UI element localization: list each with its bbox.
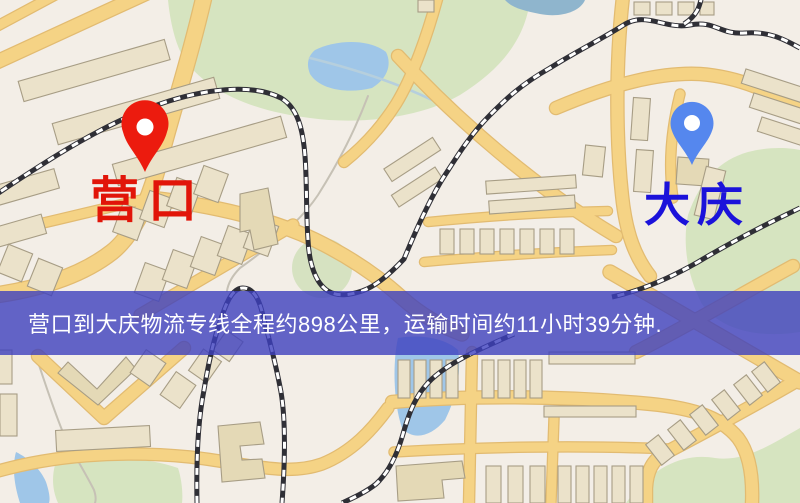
destination-pin-body[interactable] xyxy=(671,102,714,165)
map-background xyxy=(0,0,800,503)
destination-pin[interactable] xyxy=(671,102,714,165)
route-info-text: 营口到大庆物流专线全程约898公里，运输时间约11小时39分钟. xyxy=(28,307,662,339)
origin-pin-hole xyxy=(137,119,154,136)
lake-top-left xyxy=(308,42,389,91)
destination-pin-hole xyxy=(684,115,700,131)
destination-city-label: 大庆 xyxy=(644,182,750,228)
map-canvas[interactable]: 营口 大庆 营口到大庆物流专线全程约898公里，运输时间约11小时39分钟. xyxy=(0,0,800,503)
route-info-banner: 营口到大庆物流专线全程约898公里，运输时间约11小时39分钟. xyxy=(0,291,800,355)
origin-city-label: 营口 xyxy=(90,177,206,226)
